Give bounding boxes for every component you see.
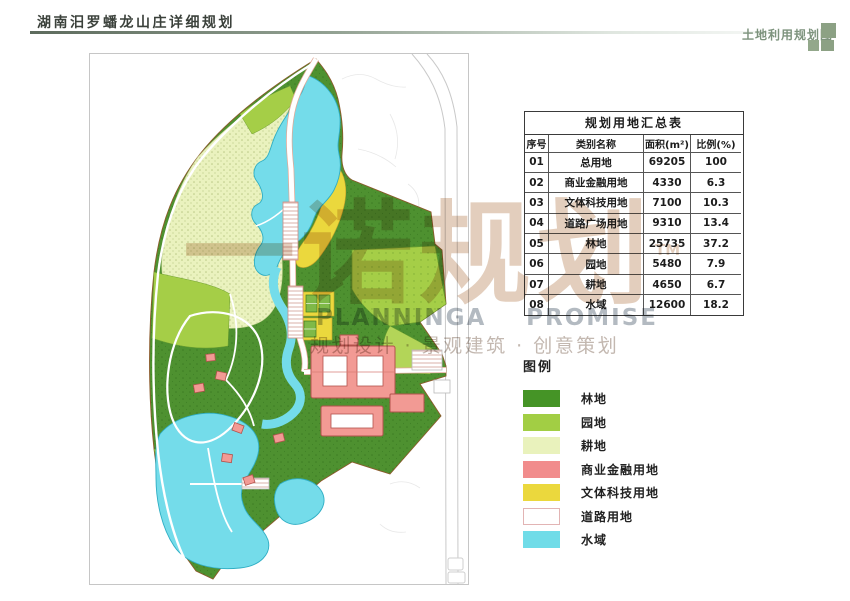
logo-square-icon bbox=[821, 40, 834, 51]
legend-item: 水域 bbox=[523, 528, 659, 552]
road-swatch bbox=[523, 508, 560, 525]
column-header: 面积(m²) bbox=[644, 135, 691, 153]
column-header: 序号 bbox=[525, 135, 549, 153]
site-plan-map bbox=[90, 54, 468, 584]
farmland-swatch bbox=[523, 437, 560, 454]
table-cell: 4330 bbox=[644, 173, 691, 193]
table-cell: 08 bbox=[525, 295, 549, 314]
land-use-summary-table: 规划用地汇总表 序号 类别名称 面积(m²) 比例(%) 01 总用地 6920… bbox=[524, 111, 744, 316]
table-cell: 林地 bbox=[549, 234, 644, 254]
table-cell: 水域 bbox=[549, 295, 644, 314]
culture-swatch bbox=[523, 484, 560, 501]
table-cell: 01 bbox=[525, 153, 549, 173]
table-cell: 4650 bbox=[644, 275, 691, 295]
table-cell: 18.2 bbox=[691, 295, 741, 314]
table-cell: 道路广场用地 bbox=[549, 214, 644, 234]
table-cell: 10.3 bbox=[691, 193, 741, 213]
table-cell: 7.9 bbox=[691, 254, 741, 274]
column-header: 比例(%) bbox=[691, 135, 741, 153]
table-cell: 06 bbox=[525, 254, 549, 274]
table-cell: 园地 bbox=[549, 254, 644, 274]
legend-item: 文体科技用地 bbox=[523, 481, 659, 505]
logo-square-icon bbox=[821, 23, 836, 38]
map-legend: 图例 林地 园地 耕地 商业金融用地 文体科技用地 道路用地 水域 bbox=[523, 356, 659, 552]
sheet-name-block: 土地利用规划图 bbox=[742, 22, 842, 56]
table-cell: 9310 bbox=[644, 214, 691, 234]
table-cell: 100 bbox=[691, 153, 741, 173]
land-use-plan-page: { "header": { "title": "湖南汨罗蟠龙山庄详细规划", "… bbox=[0, 0, 850, 601]
table-cell: 13.4 bbox=[691, 214, 741, 234]
legend-title: 图例 bbox=[523, 356, 659, 375]
legend-item: 林地 bbox=[523, 387, 659, 411]
table-cell: 6.7 bbox=[691, 275, 741, 295]
table-cell: 37.2 bbox=[691, 234, 741, 254]
legend-item: 耕地 bbox=[523, 434, 659, 458]
page-title: 湖南汨罗蟠龙山庄详细规划 bbox=[37, 12, 235, 32]
table-cell: 02 bbox=[525, 173, 549, 193]
legend-item: 商业金融用地 bbox=[523, 458, 659, 482]
legend-item: 道路用地 bbox=[523, 505, 659, 529]
table-cell: 5480 bbox=[644, 254, 691, 274]
forest-swatch bbox=[523, 390, 560, 407]
table-cell: 05 bbox=[525, 234, 549, 254]
table-cell: 25735 bbox=[644, 234, 691, 254]
table-cell: 6.3 bbox=[691, 173, 741, 193]
commercial-swatch bbox=[523, 461, 560, 478]
table-cell: 文体科技用地 bbox=[549, 193, 644, 213]
table-cell: 04 bbox=[525, 214, 549, 234]
pond-east bbox=[274, 479, 324, 525]
garden-swatch bbox=[523, 414, 560, 431]
legend-item: 园地 bbox=[523, 411, 659, 435]
table-cell: 12600 bbox=[644, 295, 691, 314]
site-plan-map-frame bbox=[89, 53, 469, 585]
table-cell: 69205 bbox=[644, 153, 691, 173]
table-cell: 商业金融用地 bbox=[549, 173, 644, 193]
water-swatch bbox=[523, 531, 560, 548]
table-cell: 耕地 bbox=[549, 275, 644, 295]
title-underline-rule bbox=[30, 31, 835, 34]
column-header: 类别名称 bbox=[549, 135, 644, 153]
table-cell: 总用地 bbox=[549, 153, 644, 173]
table-cell: 07 bbox=[525, 275, 549, 295]
sheet-name-label: 土地利用规划图 bbox=[742, 26, 833, 43]
table-cell: 7100 bbox=[644, 193, 691, 213]
table-title: 规划用地汇总表 bbox=[525, 112, 743, 135]
table-cell: 03 bbox=[525, 193, 549, 213]
logo-square-icon bbox=[808, 40, 819, 51]
